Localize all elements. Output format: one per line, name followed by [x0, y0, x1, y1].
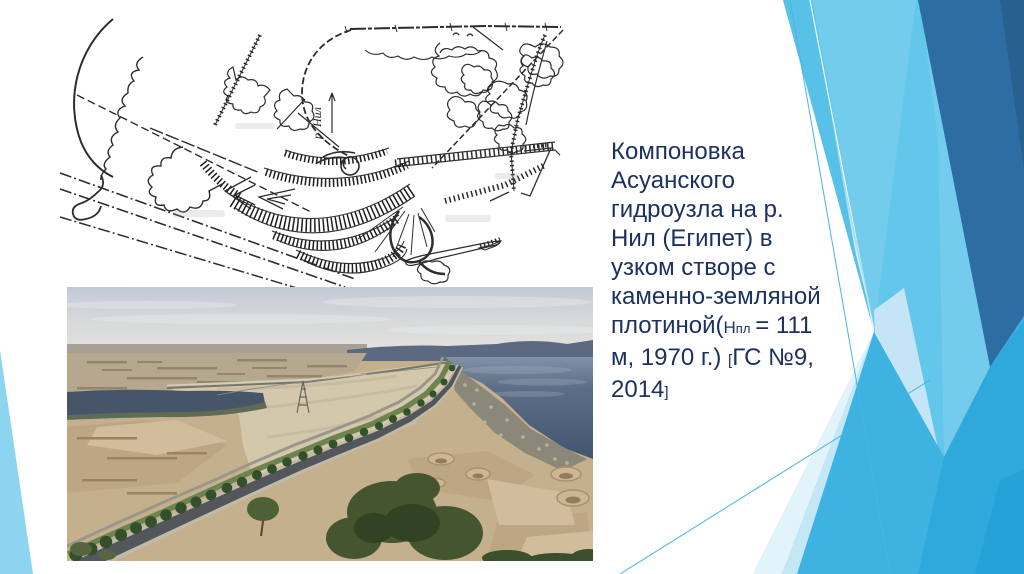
svg-text:р. Нил: р. Нил	[310, 107, 324, 140]
